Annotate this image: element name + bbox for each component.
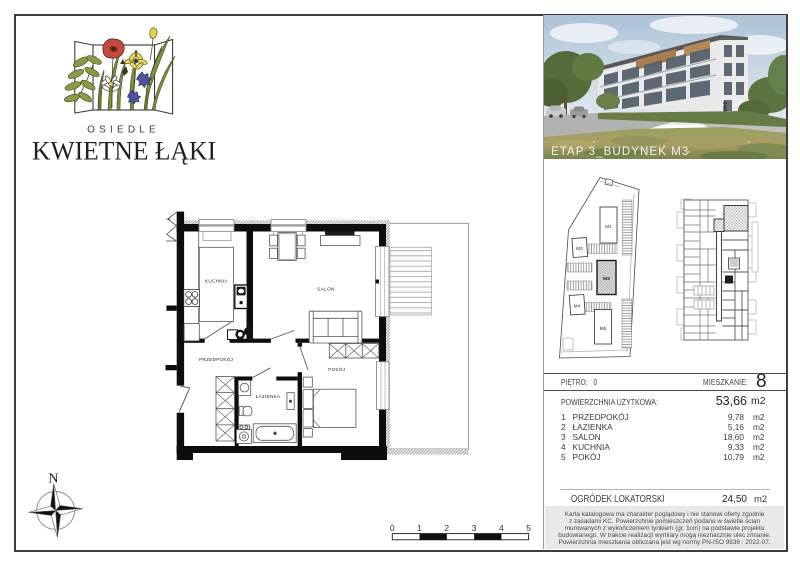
svg-text:N: N	[48, 472, 58, 487]
svg-text:PRZEDPOKÓJ: PRZEDPOKÓJ	[199, 356, 233, 362]
svg-text:2: 2	[444, 523, 449, 533]
svg-text:KUCHNIA: KUCHNIA	[205, 278, 228, 283]
svg-text:ŁAZIENKA: ŁAZIENKA	[256, 394, 281, 399]
svg-text:1: 1	[417, 523, 422, 533]
svg-text:POKÓJ: POKÓJ	[328, 366, 345, 372]
svg-text:M4: M4	[574, 304, 581, 310]
svg-text:KWIETNE ŁĄKI: KWIETNE ŁĄKI	[32, 137, 216, 166]
svg-text:M3: M3	[603, 276, 610, 282]
svg-text:4: 4	[499, 523, 504, 533]
svg-text:3: 3	[472, 523, 477, 533]
svg-text:M2: M2	[576, 246, 583, 252]
svg-text:0: 0	[390, 523, 395, 533]
svg-text:ETAP 3_BUDYNEK M3: ETAP 3_BUDYNEK M3	[551, 146, 689, 158]
svg-text:OSIEDLE: OSIEDLE	[87, 125, 160, 136]
svg-text:SALON: SALON	[317, 286, 335, 291]
svg-text:M1: M1	[605, 224, 612, 230]
svg-text:M5: M5	[600, 326, 607, 332]
svg-text:5: 5	[526, 523, 531, 533]
